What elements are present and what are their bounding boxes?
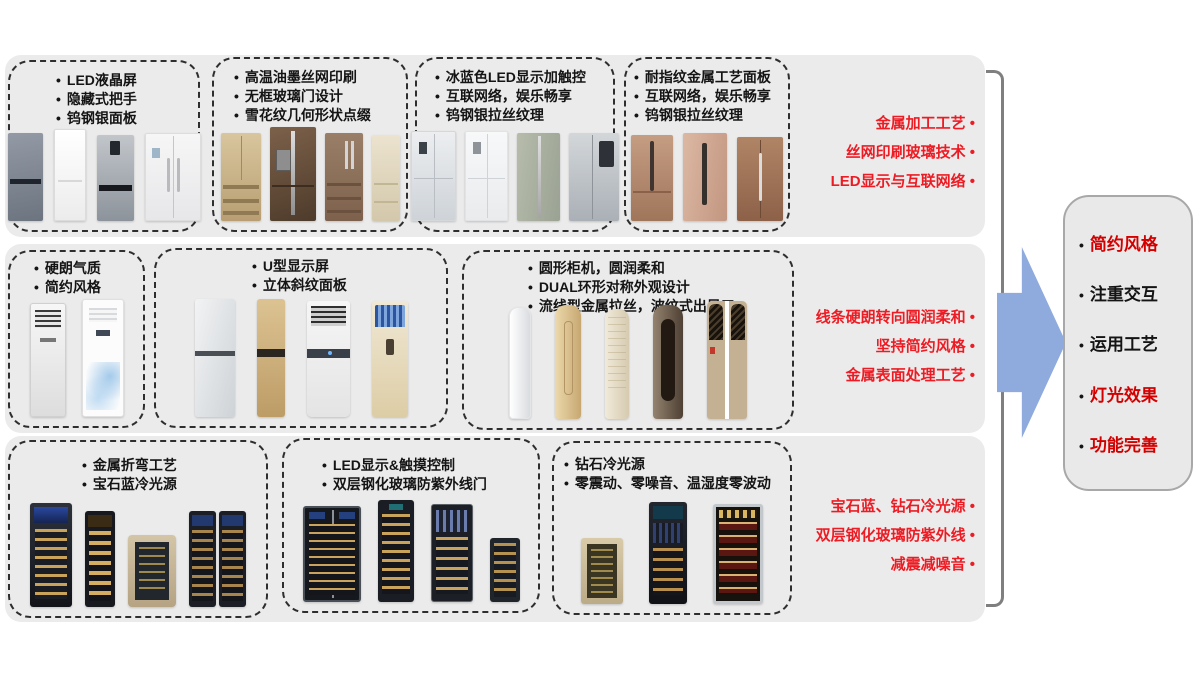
annotation: 减震减噪音 — [690, 550, 975, 579]
annotation: 坚持简约风格 — [690, 332, 975, 361]
air-conditioner-image — [653, 305, 683, 419]
feature-bullet: 双层钢化玻璃防紫外线门 — [322, 475, 538, 494]
summary-item: 灯光效果 — [1079, 381, 1185, 406]
feature-bullet: 立体斜纹面板 — [252, 276, 446, 295]
annotations-row-2: 线条硬朗转向圆润柔和 坚持简约风格 金属表面处理工艺 — [690, 303, 975, 390]
feature-box-ac-1: 硬朗气质 简约风格 — [8, 250, 145, 428]
air-conditioner-image — [509, 307, 531, 419]
wine-cooler-image — [490, 538, 520, 602]
annotations-row-3: 宝石蓝、钻石冷光源 双层钢化玻璃防紫外线 减震减噪音 — [690, 492, 975, 579]
feature-box-fridge-2: 高温油墨丝网印刷 无框玻璃门设计 雪花纹几何形状点缀 — [212, 57, 408, 232]
summary-box: 简约风格 注重交互 运用工艺 灯光效果 功能完善 — [1063, 195, 1193, 491]
wine-cooler-image — [581, 538, 623, 604]
air-conditioner-image — [82, 299, 124, 417]
annotations-row-1: 金属加工工艺 丝网印刷玻璃技术 LED显示与互联网络 — [690, 109, 975, 196]
fridge-image — [54, 129, 86, 221]
feature-bullet: 宝石蓝冷光源 — [82, 475, 266, 494]
fridge-image — [325, 133, 363, 221]
fridge-image — [569, 133, 619, 221]
wine-cooler-image — [303, 506, 361, 602]
fridge-image — [631, 135, 673, 221]
feature-box-wine-1: 金属折弯工艺 宝石蓝冷光源 — [8, 440, 268, 618]
feature-box-wine-2: LED显示&触摸控制 双层钢化玻璃防紫外线门 — [282, 438, 540, 613]
feature-bullet: LED显示&触摸控制 — [322, 456, 538, 475]
annotation: 宝石蓝、钻石冷光源 — [690, 492, 975, 521]
feature-bullet: 圆形柜机，圆润柔和 — [528, 259, 792, 278]
fridge-image — [411, 131, 456, 221]
fridge-image — [145, 133, 201, 221]
summary-item: 运用工艺 — [1079, 330, 1185, 355]
wine-cooler-image — [128, 535, 176, 607]
air-conditioner-image — [257, 299, 285, 417]
feature-bullet: 简约风格 — [34, 278, 143, 297]
fridge-image — [465, 131, 508, 221]
fridge-image — [517, 133, 560, 221]
annotation: 线条硬朗转向圆润柔和 — [690, 303, 975, 332]
air-conditioner-image — [372, 301, 408, 417]
wine-cooler-image — [649, 502, 687, 604]
feature-bullet: 钻石冷光源 — [564, 455, 790, 474]
air-conditioner-image — [30, 303, 66, 417]
wine-cooler-image — [85, 511, 115, 607]
feature-bullet: 高温油墨丝网印刷 — [234, 68, 406, 87]
annotation: 双层钢化玻璃防紫外线 — [690, 521, 975, 550]
fridge-image — [97, 135, 134, 221]
air-conditioner-image — [605, 309, 629, 419]
feature-bullet: 钨钢银面板 — [56, 109, 198, 128]
feature-bullet: 耐指纹金属工艺面板 — [634, 68, 788, 87]
feature-bullet: 冰蓝色LED显示加触控 — [435, 68, 613, 87]
annotation: 丝网印刷玻璃技术 — [690, 138, 975, 167]
feature-bullet: 互联网络，娱乐畅享 — [435, 87, 613, 106]
right-block-arrow — [997, 247, 1066, 438]
air-conditioner-image — [307, 301, 350, 417]
annotation: 金属加工工艺 — [690, 109, 975, 138]
annotation: 金属表面处理工艺 — [690, 361, 975, 390]
slide-canvas: LED液晶屏 隐藏式把手 钨钢银面板 高温油墨丝网印刷 无框玻璃门设计 雪花纹几… — [0, 0, 1200, 675]
air-conditioner-image — [195, 299, 235, 417]
feature-box-fridge-1: LED液晶屏 隐藏式把手 钨钢银面板 — [8, 60, 200, 232]
feature-bullet: LED液晶屏 — [56, 71, 198, 90]
feature-bullet: 互联网络，娱乐畅享 — [634, 87, 788, 106]
wine-cooler-image — [378, 500, 414, 602]
wine-cooler-image — [189, 511, 216, 607]
summary-item: 简约风格 — [1079, 230, 1185, 255]
fridge-image — [372, 135, 400, 221]
wine-cooler-image — [30, 503, 72, 607]
air-conditioner-image — [555, 305, 581, 419]
fridge-image — [221, 133, 261, 221]
feature-bullet: 零震动、零噪音、温湿度零波动 — [564, 474, 790, 493]
feature-bullet: DUAL环形对称外观设计 — [528, 278, 792, 297]
feature-box-ac-2: U型显示屏 立体斜纹面板 — [154, 248, 448, 428]
wine-cooler-image — [431, 504, 473, 602]
summary-item: 注重交互 — [1079, 280, 1185, 305]
feature-bullet: 硬朗气质 — [34, 259, 143, 278]
feature-box-fridge-3: 冰蓝色LED显示加触控 互联网络，娱乐畅享 钨钢银拉丝纹理 — [415, 57, 615, 232]
feature-bullet: 隐藏式把手 — [56, 90, 198, 109]
wine-cooler-image — [219, 511, 246, 607]
summary-item: 功能完善 — [1079, 431, 1185, 456]
fridge-image — [8, 133, 43, 221]
feature-bullet: 金属折弯工艺 — [82, 456, 266, 475]
feature-bullet: U型显示屏 — [252, 257, 446, 276]
feature-bullet: 钨钢银拉丝纹理 — [435, 106, 613, 125]
fridge-image — [270, 127, 316, 221]
annotation: LED显示与互联网络 — [690, 167, 975, 196]
feature-bullet: 无框玻璃门设计 — [234, 87, 406, 106]
feature-bullet: 雪花纹几何形状点缀 — [234, 106, 406, 125]
